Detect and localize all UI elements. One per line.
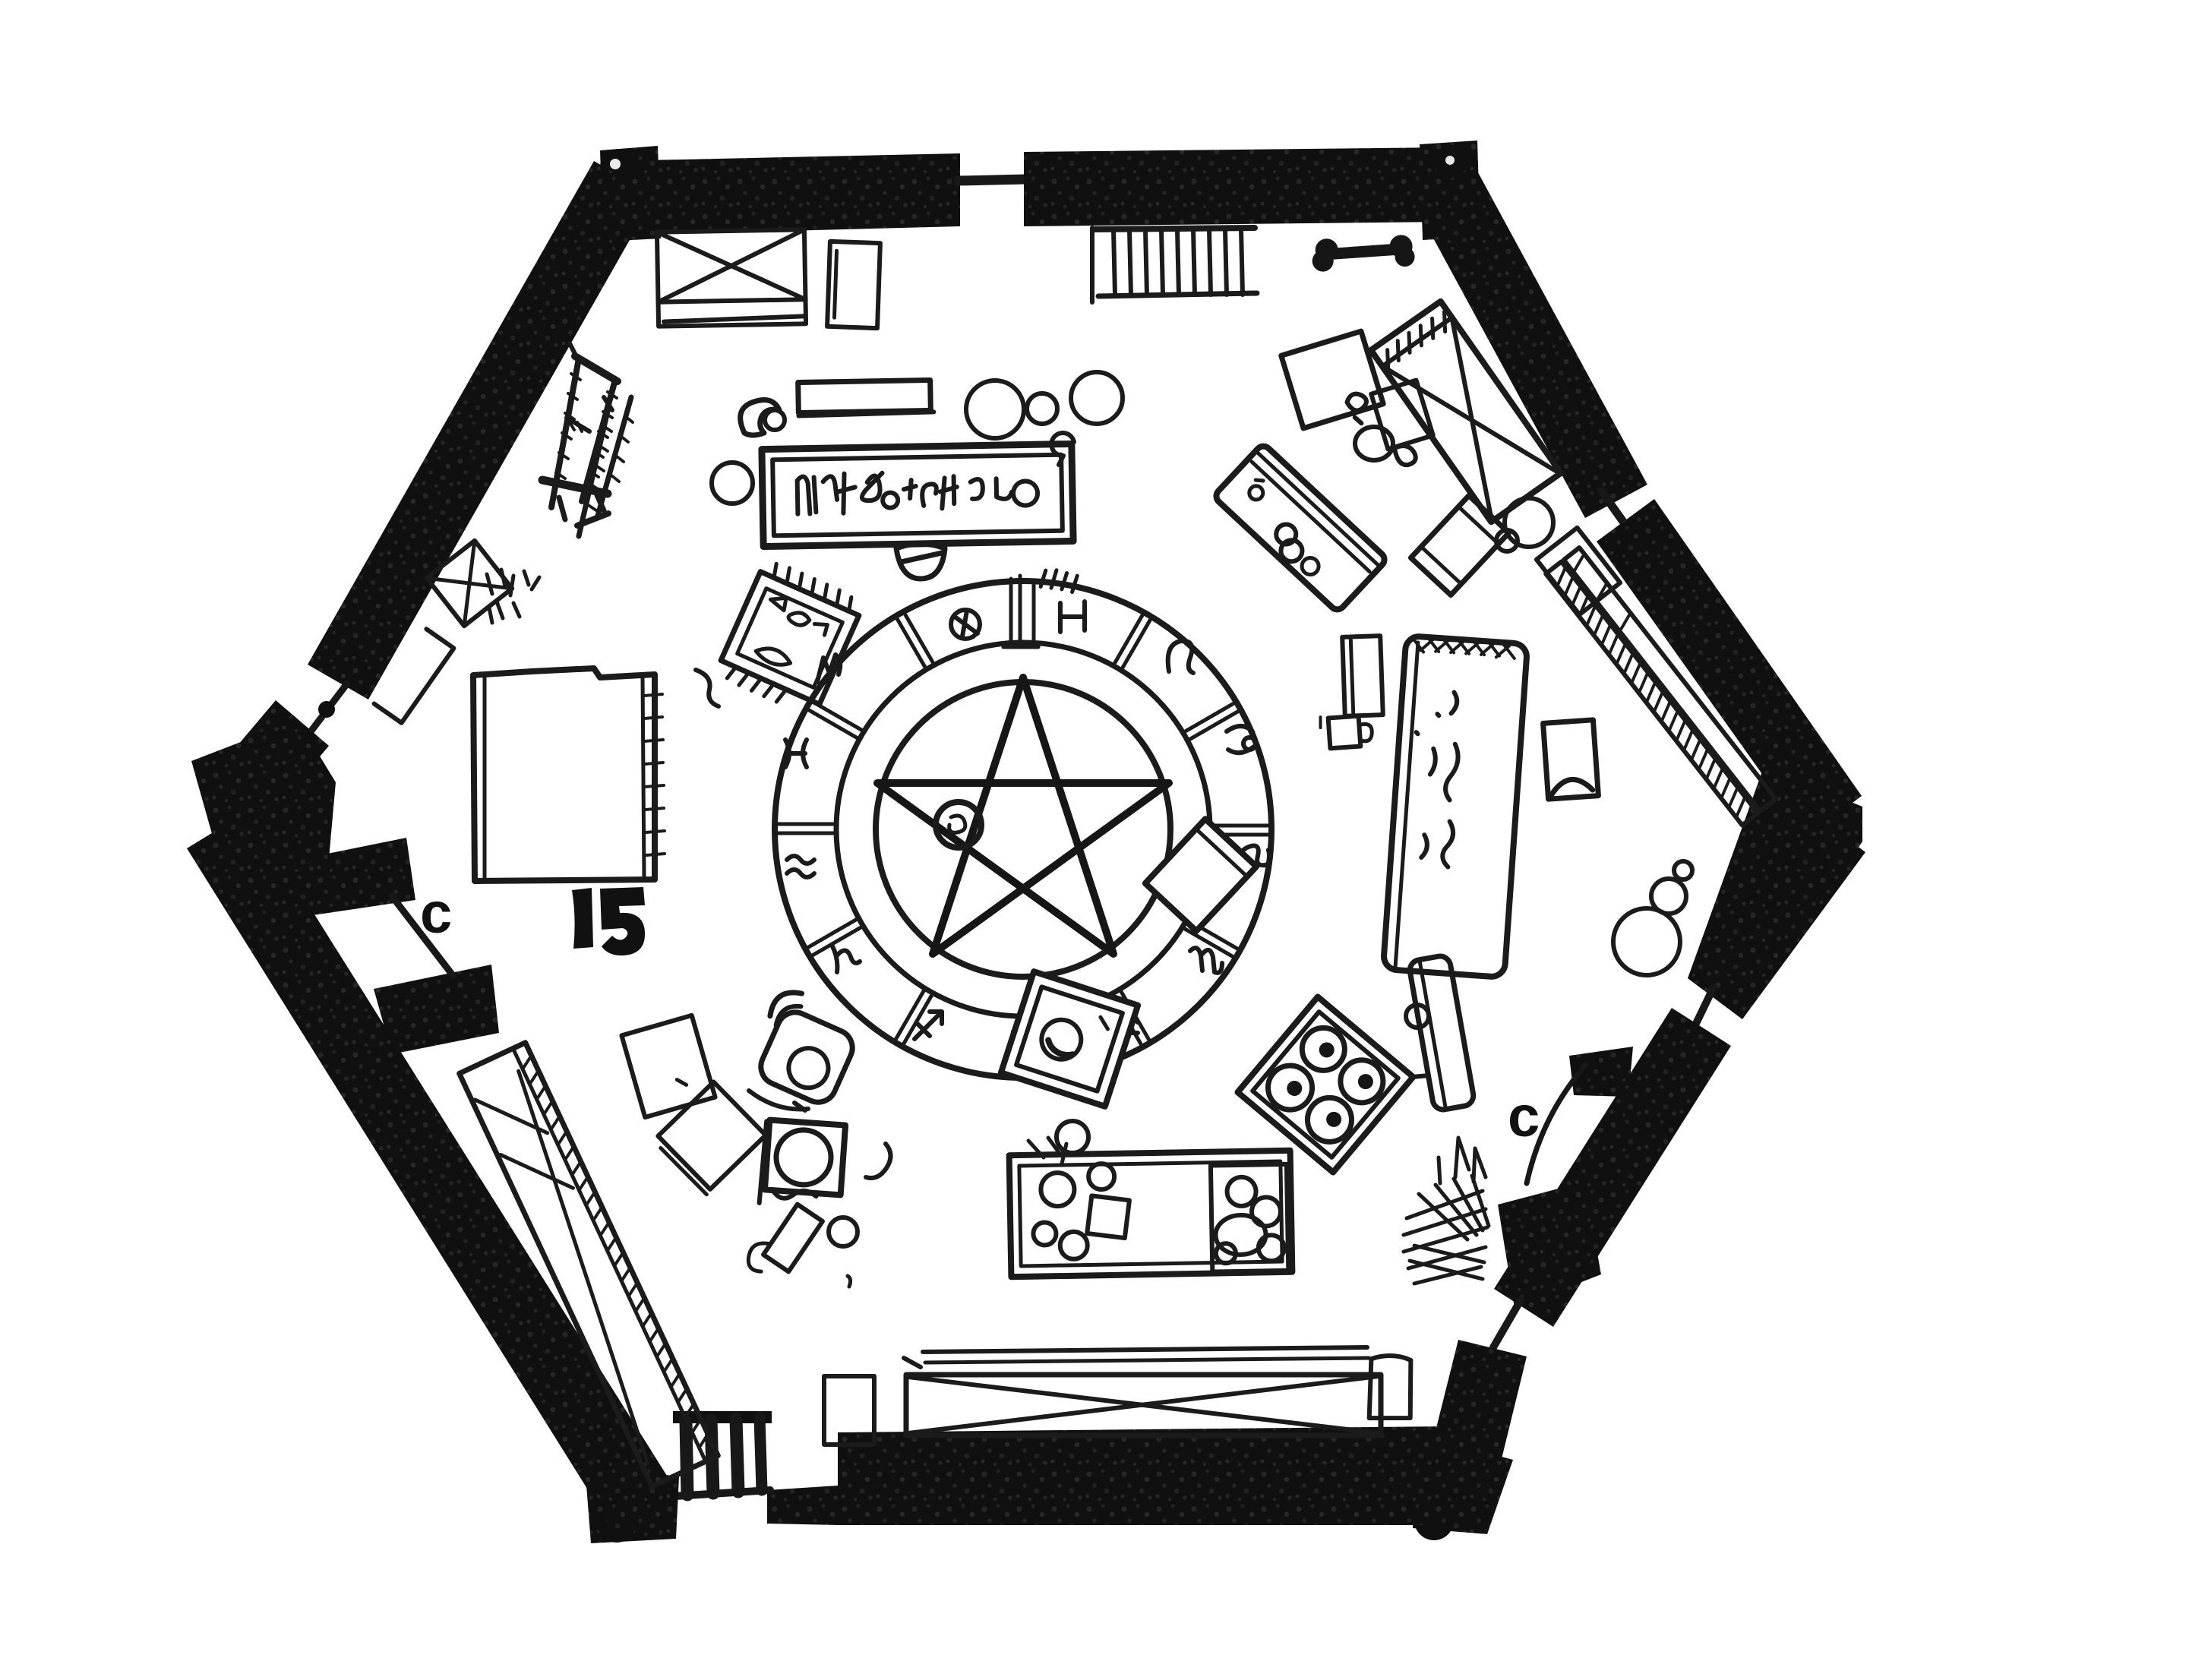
svg-text:c: c xyxy=(1508,1085,1540,1149)
svg-text:c: c xyxy=(420,881,452,946)
